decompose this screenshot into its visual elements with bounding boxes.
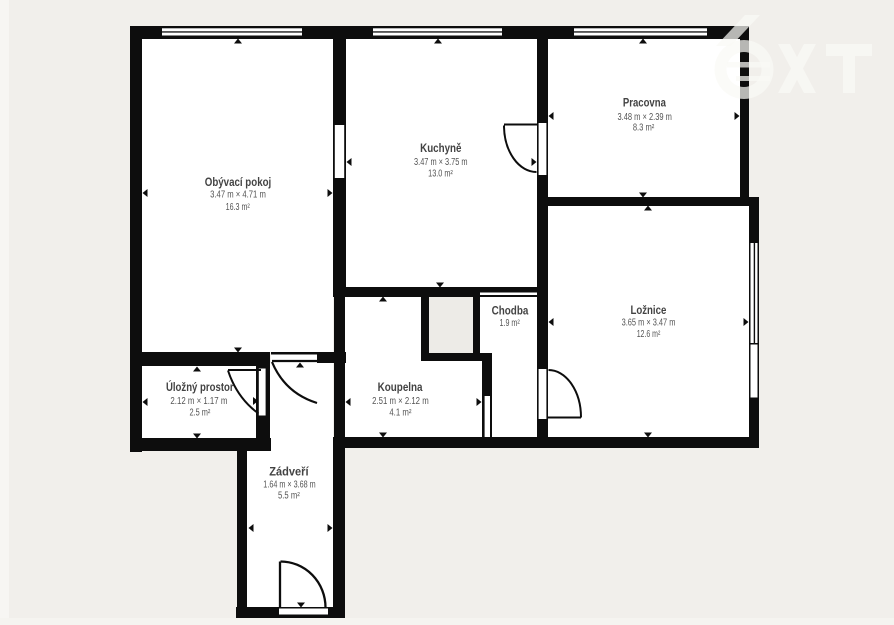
svg-text:Obývací pokoj: Obývací pokoj (205, 175, 272, 189)
svg-text:13.0 m²: 13.0 m² (428, 169, 453, 180)
svg-text:1.64 m × 3.68 m: 1.64 m × 3.68 m (263, 479, 315, 490)
svg-text:3.65 m × 3.47 m: 3.65 m × 3.47 m (622, 317, 676, 328)
svg-text:1.9 m²: 1.9 m² (500, 318, 521, 329)
svg-text:Kuchyně: Kuchyně (420, 141, 462, 155)
svg-text:Koupelna: Koupelna (378, 380, 423, 394)
svg-text:8.3 m²: 8.3 m² (633, 123, 655, 134)
svg-text:5.5 m²: 5.5 m² (278, 491, 300, 502)
svg-text:3.48 m × 2.39 m: 3.48 m × 2.39 m (618, 112, 672, 123)
svg-text:2.51 m × 2.12 m: 2.51 m × 2.12 m (372, 396, 429, 407)
svg-text:Pracovna: Pracovna (623, 96, 666, 110)
svg-text:Chodba: Chodba (492, 303, 529, 317)
svg-text:3.47 m × 3.75 m: 3.47 m × 3.75 m (414, 157, 468, 168)
svg-text:3.47 m × 4.71 m: 3.47 m × 4.71 m (210, 190, 266, 201)
svg-text:2.12 m × 1.17 m: 2.12 m × 1.17 m (170, 396, 227, 407)
svg-text:16.3 m²: 16.3 m² (226, 202, 251, 213)
svg-text:Ložnice: Ložnice (630, 303, 666, 317)
svg-text:2.5 m²: 2.5 m² (189, 407, 210, 418)
svg-text:12.6 m²: 12.6 m² (637, 329, 661, 340)
svg-text:4.1 m²: 4.1 m² (389, 408, 412, 419)
svg-text:Zádveří: Zádveří (269, 465, 309, 479)
svg-text:Úložný prostor: Úložný prostor (166, 379, 234, 394)
